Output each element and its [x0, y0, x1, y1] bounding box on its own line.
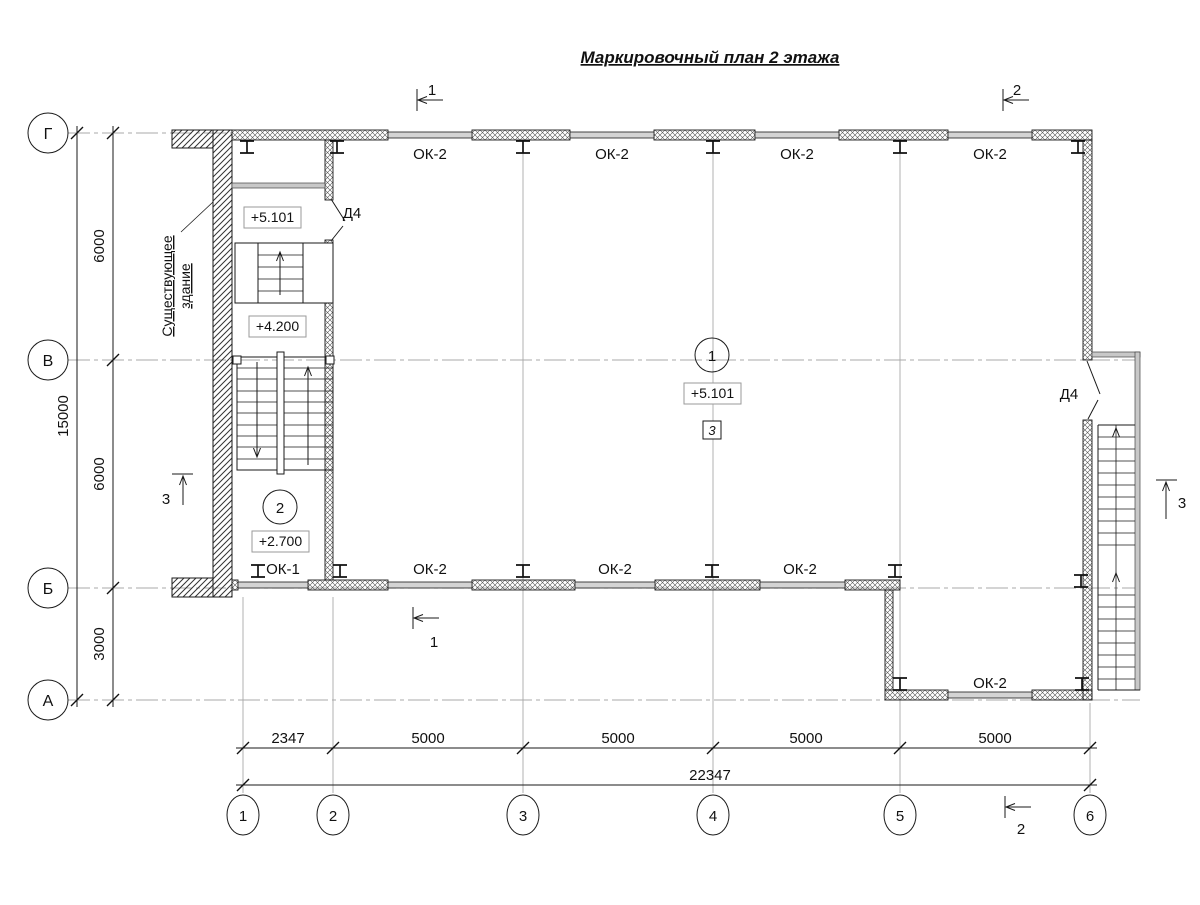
column-icon — [893, 141, 907, 153]
dim-bottom-total: 22347 — [689, 767, 731, 784]
level-upper-landing: +5.101 — [251, 209, 294, 225]
section-2-bottom: 2 — [1017, 821, 1025, 838]
floor-plan-drawing: Маркировочный план 2 этажа 6000 6000 300… — [0, 0, 1200, 900]
dimensions-left: 6000 6000 3000 15000 — [55, 126, 119, 707]
axis-col-4: 4 — [709, 808, 717, 825]
section-marks: 1 2 1 2 3 3 — [162, 82, 1186, 838]
axis-row-v: В — [43, 353, 54, 370]
section-1-bottom: 1 — [430, 634, 438, 651]
hall-note-ref: 3 — [708, 423, 716, 438]
column-icon — [893, 678, 907, 690]
window-label: ОК-2 — [780, 146, 814, 163]
dim-left-seg-1: 6000 — [91, 229, 108, 262]
section-3-right: 3 — [1178, 495, 1186, 512]
axis-bubbles-bottom: 1 2 3 4 5 6 — [227, 795, 1106, 835]
dim-left-seg-2: 6000 — [91, 457, 108, 490]
stair-upper — [235, 243, 333, 303]
window-label: ОК-2 — [973, 675, 1007, 692]
window-label: ОК-2 — [973, 146, 1007, 163]
page-title: Маркировочный план 2 этажа — [581, 48, 840, 67]
column-icon — [705, 565, 719, 577]
window-label: ОК-2 — [598, 561, 632, 578]
dimensions-bottom: 2347 5000 5000 5000 5000 22347 — [236, 730, 1097, 791]
dim-left-total: 15000 — [55, 395, 72, 437]
existing-building-note: Существующее здание — [159, 202, 213, 337]
plan-canvas: Маркировочный план 2 этажа 6000 6000 300… — [0, 0, 1200, 900]
axis-row-a: А — [43, 693, 54, 710]
door-label-right: Д4 — [1060, 386, 1079, 403]
axis-row-g: Г — [44, 126, 53, 143]
axis-col-2: 2 — [329, 808, 337, 825]
dim-left-seg-3: 3000 — [91, 627, 108, 660]
column-icon — [240, 141, 254, 153]
column-icon — [251, 565, 265, 577]
door-leaf-right — [1087, 361, 1100, 419]
section-3-left: 3 — [162, 491, 170, 508]
axis-row-b: Б — [43, 581, 54, 598]
level-room2: +2.700 — [259, 533, 302, 549]
dim-bottom-seg-1: 2347 — [271, 730, 304, 747]
window-label: ОК-2 — [783, 561, 817, 578]
column-icon — [516, 141, 530, 153]
level-hall: +5.101 — [691, 385, 734, 401]
column-icon — [333, 565, 347, 577]
column-icon — [706, 141, 720, 153]
room-number-stair: 2 — [276, 500, 284, 517]
section-2-top: 2 — [1013, 82, 1021, 99]
dim-bottom-seg-3: 5000 — [601, 730, 634, 747]
window-label: ОК-2 — [595, 146, 629, 163]
stair-main — [233, 352, 334, 474]
window-labels: ОК-2 ОК-2 ОК-2 ОК-2 ОК-1 ОК-2 ОК-2 ОК-2 … — [266, 146, 1007, 692]
door-label-left: Д4 — [343, 205, 362, 222]
window-label: ОК-1 — [266, 561, 300, 578]
axis-col-1: 1 — [239, 808, 247, 825]
walls — [172, 130, 1140, 700]
column-icon — [516, 565, 530, 577]
stair-exterior-right — [1098, 425, 1140, 690]
axis-col-5: 5 — [896, 808, 904, 825]
dim-bottom-seg-5: 5000 — [978, 730, 1011, 747]
axis-col-3: 3 — [519, 808, 527, 825]
steel-columns — [240, 141, 1089, 690]
dim-bottom-seg-4: 5000 — [789, 730, 822, 747]
room-number-hall: 1 — [708, 348, 716, 365]
existing-building-label-line1: Существующее — [159, 235, 175, 336]
window-label: ОК-2 — [413, 146, 447, 163]
level-mid-landing: +4.200 — [256, 318, 299, 334]
dim-bottom-seg-2: 5000 — [411, 730, 444, 747]
section-1-top: 1 — [428, 82, 436, 99]
axis-col-6: 6 — [1086, 808, 1094, 825]
window-label: ОК-2 — [413, 561, 447, 578]
existing-building-label-line2: здание — [177, 263, 193, 309]
